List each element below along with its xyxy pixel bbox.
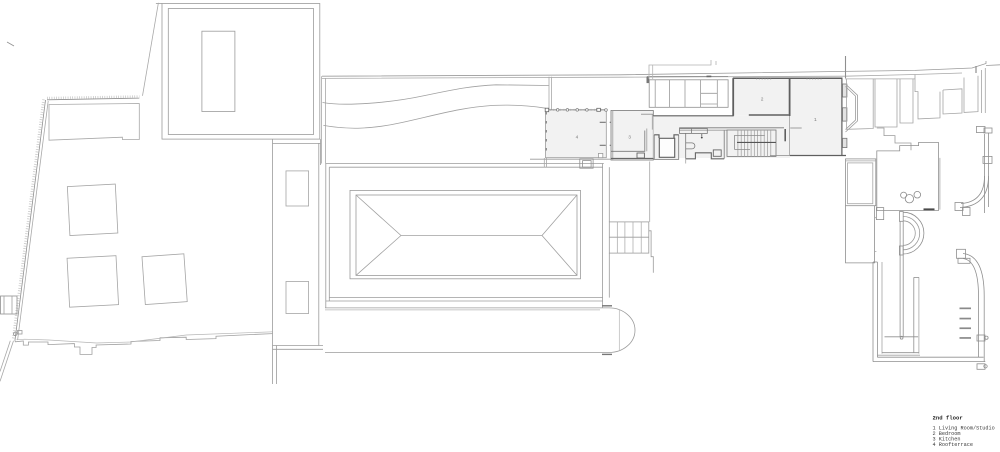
svg-text:1: 1	[814, 117, 817, 123]
svg-text:3: 3	[628, 135, 631, 141]
svg-text:4 Roofterrace: 4 Roofterrace	[933, 442, 973, 448]
svg-text:2nd floor: 2nd floor	[933, 415, 963, 422]
svg-text:4: 4	[576, 135, 579, 141]
svg-text:2: 2	[761, 97, 764, 103]
